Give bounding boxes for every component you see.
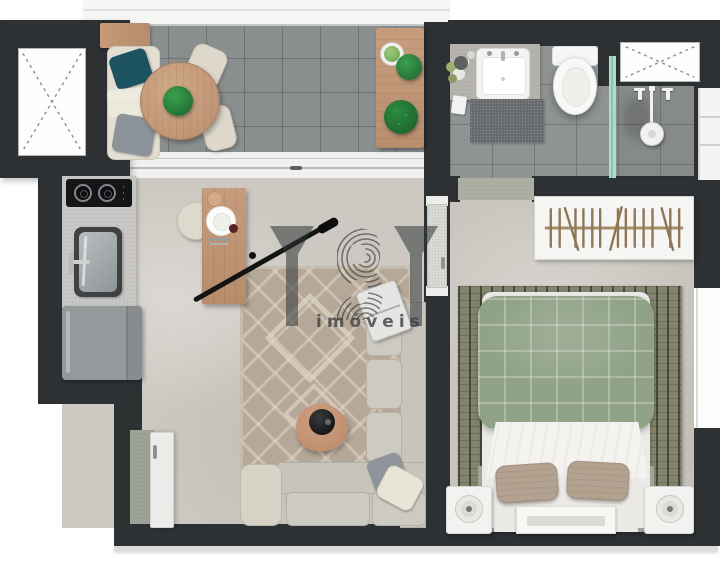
wardrobe: [534, 196, 694, 260]
flower: [448, 74, 457, 83]
bathroom-door-mat: [458, 178, 534, 200]
niche-shelf: [700, 144, 720, 146]
entry-door-handle: [153, 445, 157, 459]
kitchen-faucet-spout: [73, 260, 90, 264]
soap-dish: [454, 56, 468, 70]
wooden-bowl: [207, 191, 223, 207]
shower-niche: [698, 88, 720, 180]
shower-head-center: [648, 130, 656, 138]
lamp-center: [667, 506, 673, 512]
wall-left: [38, 176, 64, 404]
soap: [467, 51, 475, 59]
bath-mat: [470, 99, 544, 143]
bedroom-window: [696, 288, 720, 428]
sofa-cushion: [366, 359, 402, 409]
watermark-tagline: imóveis: [316, 312, 426, 332]
shower-valve: [638, 90, 642, 100]
wine-glass: [229, 224, 238, 233]
wall-shadow: [114, 546, 718, 551]
arc-floor-lamp-knob: [249, 252, 256, 259]
bed-headboard-shelf: [516, 506, 616, 534]
burner: [74, 184, 92, 202]
shaft-x-mark: [19, 49, 85, 155]
shaft-x-mark: [621, 43, 699, 81]
clothes-rail: [535, 197, 693, 259]
table-plant: [163, 86, 193, 116]
bed-pillow: [566, 460, 630, 501]
service-shaft-left: [18, 48, 86, 156]
faucet-knob: [487, 51, 492, 56]
sink-basin: [482, 57, 526, 95]
bed-duvet: [478, 296, 654, 430]
refrigerator: [62, 306, 142, 380]
hand-towel: [451, 95, 467, 115]
bowl-highlight: [325, 419, 331, 425]
letter-y: [270, 226, 314, 326]
shower-head: [640, 122, 664, 146]
toilet-seat: [562, 67, 590, 107]
balcony-side-table: [100, 23, 150, 48]
lamp-center: [466, 506, 472, 512]
burner-ring: [80, 190, 88, 198]
floor-plan: YBY B imóveis: [0, 0, 720, 561]
sofa-armrest: [240, 464, 282, 526]
decor-bowl: [309, 409, 335, 435]
burner: [98, 184, 116, 202]
faucet-knob: [514, 51, 519, 56]
entry-door: [150, 432, 174, 528]
letter-y: [394, 226, 438, 326]
door-track: [100, 167, 427, 169]
door-handle: [290, 166, 302, 170]
cooktop-controls: [122, 185, 125, 201]
refrigerator-highlight: [66, 311, 70, 373]
sofa-cushion: [286, 492, 370, 526]
toilet: [553, 57, 597, 115]
wall-right-bottom: [694, 428, 720, 546]
shower-valve: [666, 90, 670, 100]
table-lamp: [455, 495, 483, 523]
burner-ring: [104, 190, 112, 198]
refrigerator-door: [126, 306, 142, 380]
niche-shelf: [700, 116, 720, 118]
cutlery: [210, 243, 228, 245]
sink-drain: [501, 77, 505, 81]
headboard-inset: [527, 516, 605, 526]
cutlery: [208, 238, 230, 241]
faucet-spout: [501, 51, 505, 61]
shelf-plant-large: [384, 100, 418, 134]
service-shaft-right: [620, 42, 700, 82]
table-lamp: [656, 495, 684, 523]
bathroom-sink: [476, 48, 530, 100]
shelf-plant: [396, 54, 422, 80]
bed-pillow: [495, 462, 559, 504]
shower-glass-partition: [609, 56, 616, 178]
